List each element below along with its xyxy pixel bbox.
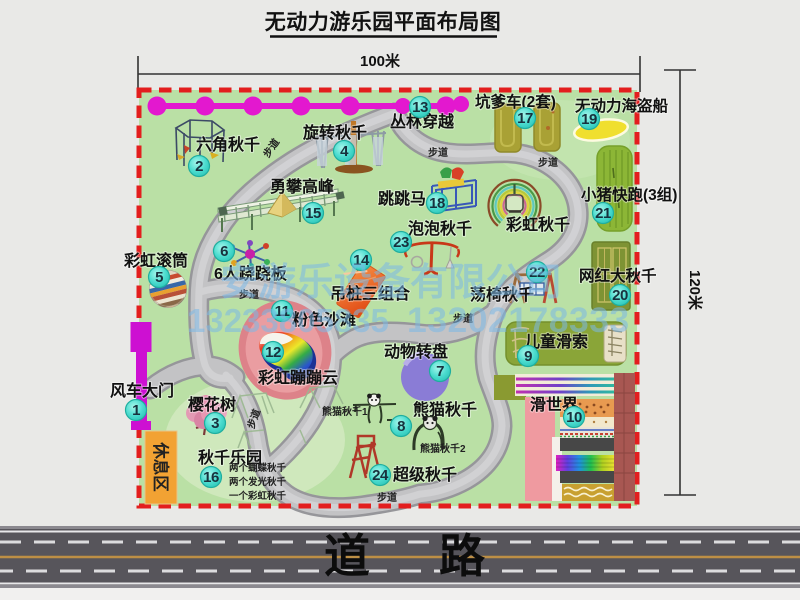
svg-text:泡泡秋千: 泡泡秋千: [408, 219, 472, 238]
svg-text:2: 2: [195, 158, 203, 175]
svg-text:步道: 步道: [428, 146, 448, 159]
svg-text:4: 4: [340, 143, 349, 160]
svg-text:23: 23: [393, 234, 409, 251]
svg-text:步道: 步道: [377, 491, 397, 504]
svg-text:熊猫秋千: 熊猫秋千: [413, 400, 477, 419]
svg-text:樱花树: 樱花树: [188, 395, 236, 414]
svg-text:24: 24: [372, 467, 389, 484]
svg-text:16: 16: [203, 469, 219, 486]
svg-text:9: 9: [524, 348, 532, 365]
svg-text:小猪快跑(3组): 小猪快跑(3组): [581, 185, 677, 204]
svg-text:19: 19: [581, 111, 597, 128]
svg-text:7: 7: [436, 363, 444, 380]
svg-text:3: 3: [211, 415, 219, 432]
svg-text:熊猫秋千2: 熊猫秋千2: [420, 442, 466, 455]
svg-text:彩虹秋千: 彩虹秋千: [505, 215, 570, 234]
svg-text:15: 15: [305, 205, 321, 222]
svg-text:13: 13: [412, 99, 428, 116]
svg-text:12: 12: [265, 344, 281, 361]
svg-text:无动力游乐园平面布局图: 无动力游乐园平面布局图: [265, 10, 502, 34]
svg-text:步道: 步道: [538, 156, 558, 169]
svg-text:两个发光秋千: 两个发光秋千: [229, 476, 287, 488]
svg-text:13233805835: 13233805835: [187, 302, 389, 339]
svg-text:路: 路: [439, 530, 486, 582]
svg-text:5: 5: [155, 269, 163, 286]
svg-text:13202178333: 13202178333: [407, 300, 630, 340]
svg-text:6: 6: [220, 243, 228, 260]
svg-text:8: 8: [397, 418, 405, 435]
svg-text:安游乐设备有限公司: 安游乐设备有限公司: [220, 262, 562, 304]
svg-text:休息区: 休息区: [151, 441, 171, 492]
svg-text:网红大秋千: 网红大秋千: [579, 266, 657, 285]
svg-text:17: 17: [517, 110, 533, 127]
svg-text:六角秋千: 六角秋千: [196, 135, 260, 154]
svg-text:两个蝴蝶秋千: 两个蝴蝶秋千: [229, 462, 287, 474]
svg-text:风车大门: 风车大门: [110, 381, 174, 400]
svg-text:旋转秋千: 旋转秋千: [302, 123, 367, 142]
svg-text:10: 10: [566, 409, 582, 426]
svg-text:一个彩虹秋千: 一个彩虹秋千: [229, 490, 287, 502]
svg-text:熊猫秋千1: 熊猫秋千1: [322, 405, 368, 418]
svg-text:道: 道: [324, 530, 370, 582]
svg-text:100米: 100米: [360, 52, 401, 70]
svg-text:跳跳马: 跳跳马: [378, 189, 426, 208]
svg-text:动物转盘: 动物转盘: [384, 342, 448, 361]
svg-text:超级秋千: 超级秋千: [392, 465, 457, 484]
svg-text:21: 21: [595, 205, 611, 222]
svg-text:勇攀高峰: 勇攀高峰: [270, 177, 335, 196]
svg-text:彩虹蹦蹦云: 彩虹蹦蹦云: [257, 368, 338, 387]
svg-text:坑爹车(2套): 坑爹车(2套): [475, 92, 556, 111]
svg-text:1: 1: [132, 402, 140, 419]
svg-text:18: 18: [429, 195, 445, 212]
svg-text:120米: 120米: [686, 270, 704, 311]
